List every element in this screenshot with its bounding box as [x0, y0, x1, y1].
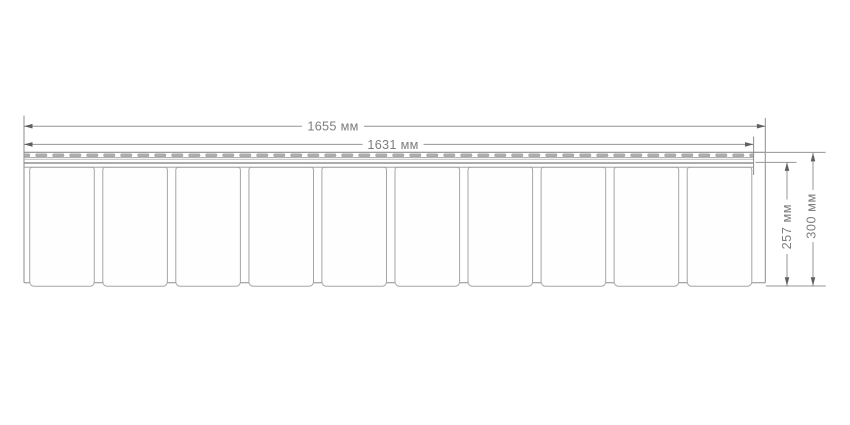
svg-text:300 мм: 300 мм	[805, 193, 819, 238]
svg-text:1631 мм: 1631 мм	[367, 138, 418, 152]
svg-text:257 мм: 257 мм	[780, 204, 794, 249]
svg-text:1655 мм: 1655 мм	[307, 120, 358, 134]
